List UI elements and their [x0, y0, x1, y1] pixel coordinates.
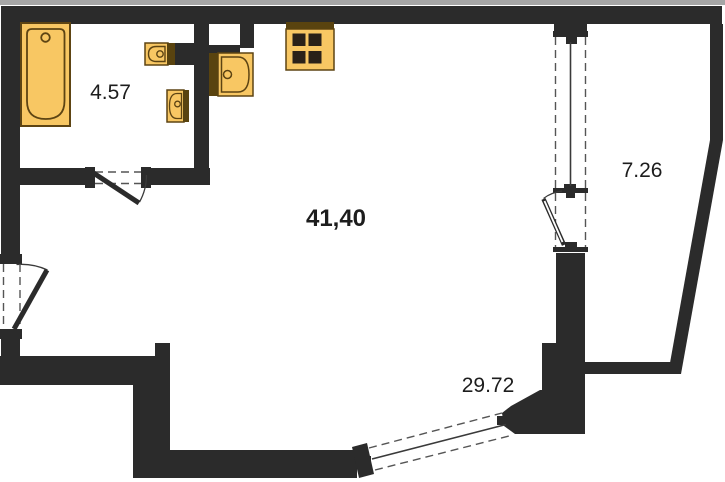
wall-corner-tab	[155, 343, 170, 356]
bathtub-icon	[21, 23, 70, 126]
fixtures	[21, 23, 334, 126]
wall-below-balcony-door	[556, 253, 585, 348]
wall-shaft-bottom	[209, 45, 240, 53]
toilet-icon	[167, 90, 184, 122]
entry-door-jamb-bottom	[0, 329, 22, 339]
balcony-window-nub-mid	[566, 193, 575, 198]
wall-left-lower	[1, 339, 20, 356]
wall-step-vertical	[133, 385, 170, 478]
floor-plan: 4.57 41,40 7.26 29.72	[0, 0, 725, 482]
entry-door-jamb-top	[0, 254, 22, 264]
entry-door-arc	[17, 264, 48, 270]
kitchen-sink-strip	[209, 53, 218, 96]
top-edge-strip	[0, 0, 725, 5]
wall-bathroom-bottom-left	[18, 168, 86, 185]
lower-zone-area-label: 29.72	[462, 374, 515, 397]
window-tick-bottom-right	[497, 416, 507, 425]
stove-strip	[286, 22, 334, 29]
burner-top-right	[309, 34, 322, 47]
burner-bottom-right	[309, 51, 322, 64]
balcony-area-label: 7.26	[622, 159, 663, 182]
balcony-window-tick-bottom	[565, 242, 577, 247]
wall-shaft-right	[240, 22, 254, 48]
door-panels	[14, 172, 564, 329]
wall-bottom-left-band	[0, 356, 170, 385]
entry-door-panel	[14, 270, 47, 329]
balcony-window-jamb-bottom	[553, 247, 588, 252]
toilet-strip	[183, 90, 189, 122]
wall-right-diagonal	[668, 140, 723, 374]
wall-right-vertical	[710, 24, 723, 140]
wall-left-upper	[1, 24, 20, 255]
balcony-window-tick-top	[566, 35, 577, 44]
wall-bottom-band	[168, 450, 357, 478]
main-room-area-label: 41,40	[306, 205, 366, 232]
balcony-door-panel-core	[545, 201, 563, 242]
burner-top-left	[293, 34, 306, 47]
bath-sink-strip	[167, 43, 175, 65]
wall-bathroom-right	[194, 22, 209, 185]
bathroom-door-panel	[92, 172, 139, 203]
bathroom-area-label: 4.57	[90, 81, 131, 104]
window-tick-bottom-left	[361, 456, 371, 465]
bath-sink-icon	[145, 43, 168, 65]
walls	[0, 6, 723, 478]
wall-top	[1, 6, 722, 24]
wall-sink-stub	[173, 43, 194, 65]
burner-bottom-left	[293, 51, 306, 64]
kitchen-sink-icon	[218, 53, 253, 96]
floor-plan-drawing: 4.57 41,40 7.26 29.72	[0, 0, 725, 482]
wall-balcony-window-tab	[554, 22, 587, 32]
wall-balcony-bottom-arm	[583, 362, 672, 374]
wall-right-widened	[542, 343, 585, 398]
